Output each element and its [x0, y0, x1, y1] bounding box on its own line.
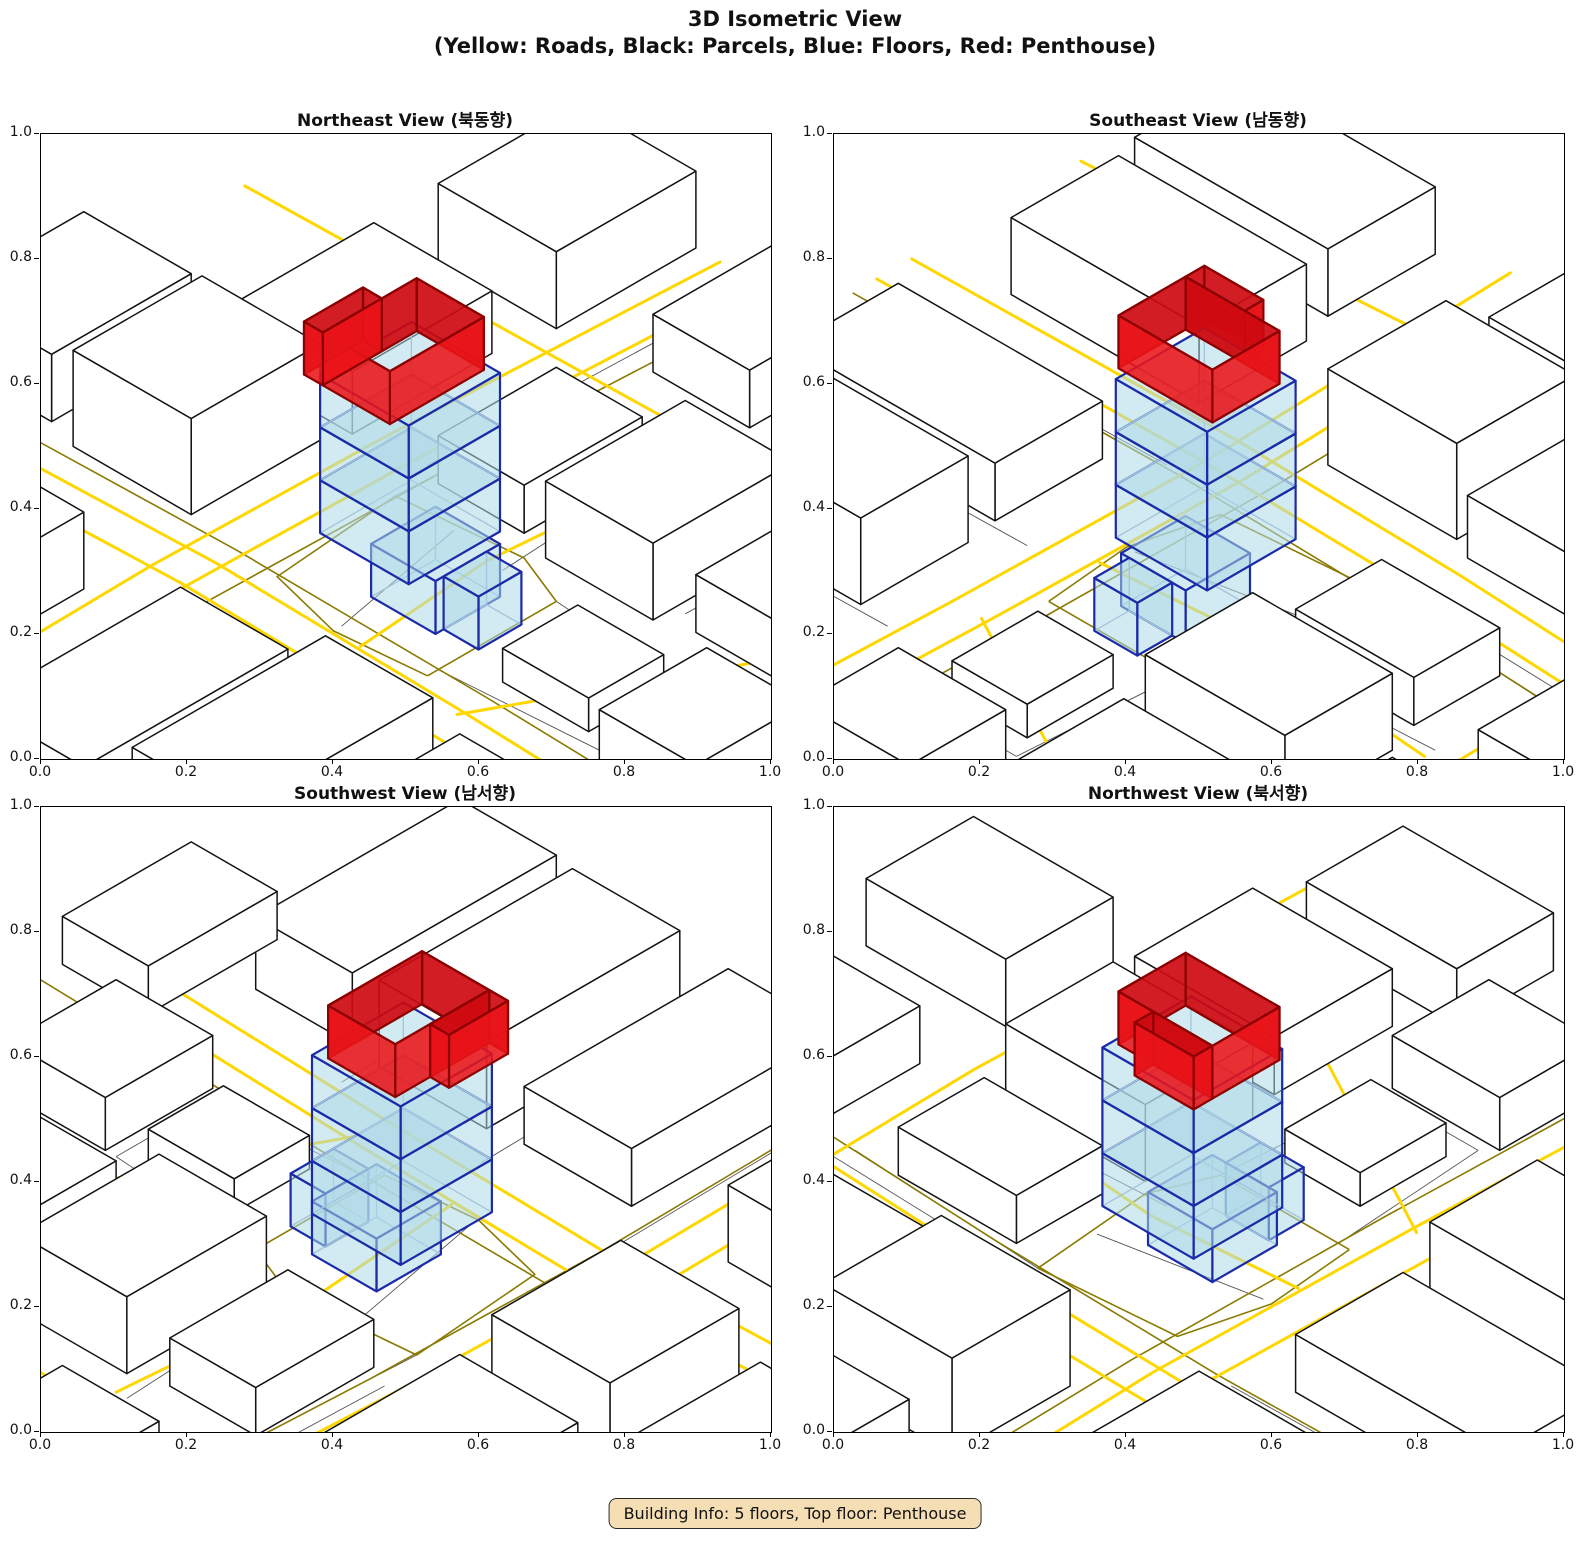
x-tick-label: 0.6	[458, 764, 498, 780]
y-tick-mark	[827, 1181, 832, 1182]
subplot-title-southeast: Southeast View (남동향)	[833, 106, 1563, 131]
x-tick-mark	[186, 1432, 187, 1437]
subplot-southwest: Southwest View (남서향) 0.00.00.20.20.40.40…	[40, 806, 770, 1431]
y-tick-label: 0.0	[0, 1422, 32, 1438]
y-tick-label: 1.0	[0, 124, 32, 140]
x-tick-label: 0.0	[20, 764, 60, 780]
x-tick-mark	[1271, 759, 1272, 764]
x-tick-mark	[770, 759, 771, 764]
y-tick-label: 0.8	[789, 922, 825, 938]
y-tick-mark	[34, 1056, 39, 1057]
y-tick-label: 1.0	[789, 797, 825, 813]
x-tick-mark	[478, 1432, 479, 1437]
y-tick-label: 0.0	[789, 749, 825, 765]
y-tick-label: 0.8	[0, 922, 32, 938]
y-tick-label: 0.6	[0, 1047, 32, 1063]
x-tick-label: 0.0	[813, 1437, 853, 1453]
y-tick-label: 0.8	[0, 249, 32, 265]
subplot-title-northwest: Northwest View (북서향)	[833, 779, 1563, 804]
x-tick-label: 0.2	[166, 764, 206, 780]
building-info-badge: Building Info: 5 floors, Top floor: Pent…	[609, 1498, 982, 1529]
x-tick-label: 0.2	[959, 764, 999, 780]
x-tick-label: 0.2	[959, 1437, 999, 1453]
y-tick-mark	[827, 1431, 832, 1432]
y-tick-mark	[34, 133, 39, 134]
x-tick-label: 1.0	[750, 1437, 790, 1453]
y-tick-mark	[34, 633, 39, 634]
y-tick-label: 0.6	[0, 374, 32, 390]
subplot-northeast: Northeast View (북동향) 0.00.00.20.20.40.40…	[40, 133, 770, 758]
x-tick-mark	[478, 759, 479, 764]
x-tick-label: 0.0	[813, 764, 853, 780]
y-tick-mark	[827, 258, 832, 259]
y-tick-label: 0.4	[789, 1172, 825, 1188]
figure-title-line2: (Yellow: Roads, Black: Parcels, Blue: Fl…	[0, 33, 1590, 60]
y-tick-label: 0.2	[0, 1297, 32, 1313]
x-tick-mark	[833, 759, 834, 764]
x-tick-label: 0.6	[1251, 1437, 1291, 1453]
x-tick-label: 1.0	[1543, 764, 1583, 780]
y-tick-mark	[827, 931, 832, 932]
y-tick-mark	[827, 758, 832, 759]
x-tick-label: 0.8	[1397, 764, 1437, 780]
subplot-canvas-northeast	[40, 133, 772, 760]
y-tick-label: 1.0	[0, 797, 32, 813]
x-tick-label: 0.4	[1105, 1437, 1145, 1453]
x-tick-mark	[332, 1432, 333, 1437]
subplot-canvas-southwest	[40, 806, 772, 1433]
y-tick-mark	[827, 1306, 832, 1307]
y-tick-mark	[827, 383, 832, 384]
x-tick-label: 0.0	[20, 1437, 60, 1453]
x-tick-mark	[40, 759, 41, 764]
x-tick-mark	[979, 1432, 980, 1437]
y-tick-mark	[827, 508, 832, 509]
y-tick-label: 0.0	[0, 749, 32, 765]
buildings-layer	[833, 817, 1565, 1434]
y-tick-mark	[34, 1306, 39, 1307]
y-tick-mark	[34, 758, 39, 759]
figure-canvas: { "title": { "line1": "3D Isometric View…	[0, 0, 1590, 1560]
x-tick-label: 0.4	[312, 1437, 352, 1453]
y-tick-mark	[34, 258, 39, 259]
x-tick-label: 0.6	[1251, 764, 1291, 780]
y-tick-label: 0.6	[789, 1047, 825, 1063]
y-tick-label: 0.2	[789, 1297, 825, 1313]
subplot-southeast: Southeast View (남동향) 0.00.00.20.20.40.40…	[833, 133, 1563, 758]
y-tick-mark	[34, 1181, 39, 1182]
y-tick-mark	[827, 806, 832, 807]
subplot-title-southwest: Southwest View (남서향)	[40, 779, 770, 804]
buildings-layer	[833, 133, 1565, 760]
y-tick-label: 0.0	[789, 1422, 825, 1438]
x-tick-label: 0.4	[1105, 764, 1145, 780]
x-tick-mark	[1563, 759, 1564, 764]
x-tick-mark	[770, 1432, 771, 1437]
x-tick-mark	[624, 1432, 625, 1437]
y-tick-mark	[34, 383, 39, 384]
x-tick-label: 0.8	[1397, 1437, 1437, 1453]
x-tick-mark	[1417, 759, 1418, 764]
y-tick-mark	[34, 508, 39, 509]
x-tick-mark	[1417, 1432, 1418, 1437]
y-tick-label: 0.4	[0, 1172, 32, 1188]
y-tick-label: 0.4	[0, 499, 32, 515]
y-tick-mark	[827, 633, 832, 634]
y-tick-mark	[827, 1056, 832, 1057]
figure-title-line1: 3D Isometric View	[0, 6, 1590, 33]
x-tick-mark	[332, 759, 333, 764]
y-tick-label: 0.8	[789, 249, 825, 265]
y-tick-label: 0.4	[789, 499, 825, 515]
x-tick-mark	[186, 759, 187, 764]
x-tick-mark	[1125, 759, 1126, 764]
subplot-title-northeast: Northeast View (북동향)	[40, 106, 770, 131]
subplot-canvas-northwest	[833, 806, 1565, 1433]
y-tick-label: 0.2	[0, 624, 32, 640]
y-tick-label: 1.0	[789, 124, 825, 140]
y-tick-mark	[827, 133, 832, 134]
x-tick-label: 0.8	[604, 764, 644, 780]
y-tick-mark	[34, 806, 39, 807]
figure-title: 3D Isometric View (Yellow: Roads, Black:…	[0, 6, 1590, 60]
y-tick-mark	[34, 931, 39, 932]
x-tick-label: 0.4	[312, 764, 352, 780]
x-tick-mark	[1125, 1432, 1126, 1437]
x-tick-mark	[833, 1432, 834, 1437]
subplot-northwest: Northwest View (북서향) 0.00.00.20.20.40.40…	[833, 806, 1563, 1431]
x-tick-label: 0.6	[458, 1437, 498, 1453]
y-tick-label: 0.6	[789, 374, 825, 390]
y-tick-label: 0.2	[789, 624, 825, 640]
x-tick-label: 0.8	[604, 1437, 644, 1453]
x-tick-mark	[1563, 1432, 1564, 1437]
x-tick-mark	[979, 759, 980, 764]
y-tick-mark	[34, 1431, 39, 1432]
x-tick-label: 1.0	[750, 764, 790, 780]
x-tick-label: 0.2	[166, 1437, 206, 1453]
buildings-layer	[40, 806, 772, 1433]
subplot-canvas-southeast	[833, 133, 1565, 760]
x-tick-mark	[1271, 1432, 1272, 1437]
x-tick-label: 1.0	[1543, 1437, 1583, 1453]
x-tick-mark	[40, 1432, 41, 1437]
x-tick-mark	[624, 759, 625, 764]
